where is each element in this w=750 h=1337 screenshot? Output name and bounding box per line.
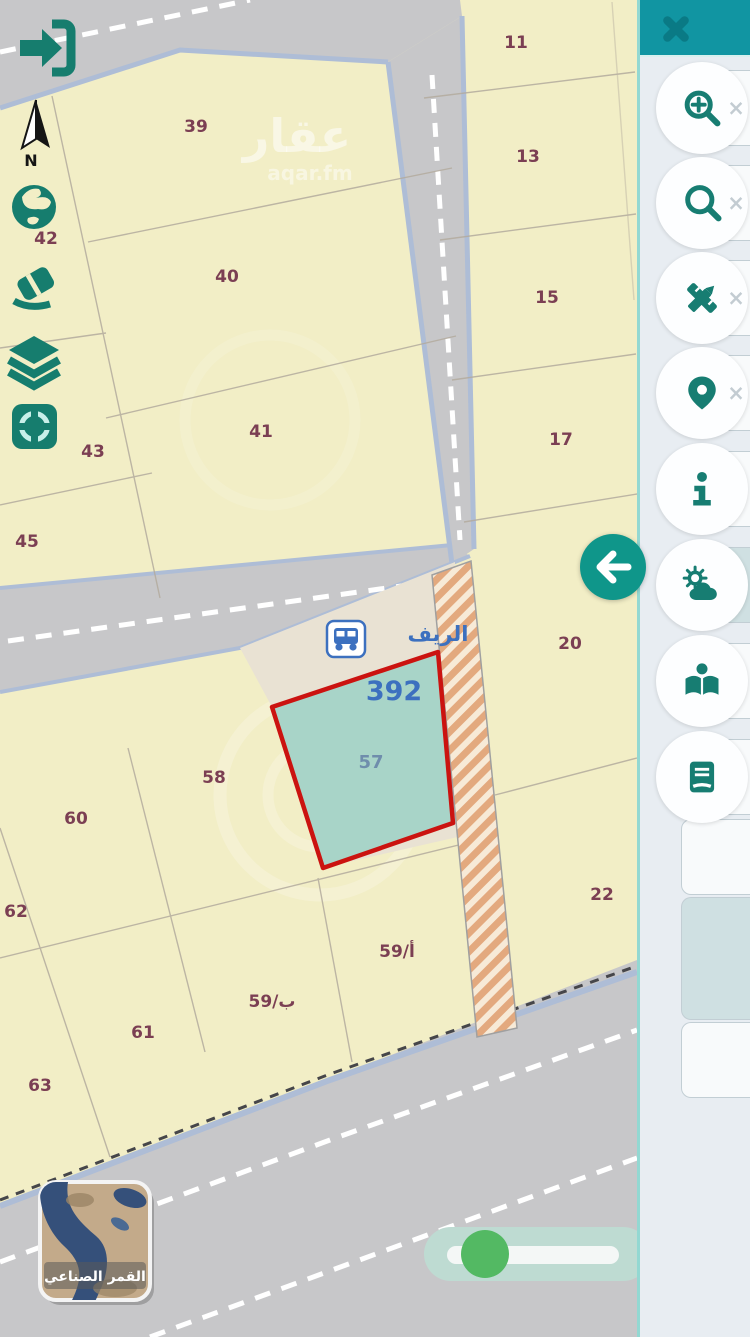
weather-icon — [679, 562, 725, 608]
parcel-label: 42 — [34, 229, 58, 249]
parcel-label: 11 — [504, 33, 528, 53]
bus-stop-icon[interactable] — [327, 621, 365, 657]
parcel-label: 17 — [549, 430, 573, 450]
open-book-icon — [680, 659, 724, 703]
parcel-label: 62 — [4, 902, 28, 922]
sidebar-card-active — [681, 897, 750, 1020]
location-pin-icon — [680, 371, 724, 415]
notebook-icon — [680, 755, 724, 799]
tool-sidebar: × × × × — [637, 0, 750, 1337]
locate-crosshair-icon[interactable] — [12, 404, 57, 449]
sidebar-header — [640, 0, 750, 57]
back-arrow-icon — [590, 544, 636, 590]
app-window: عقار aqar.fm 11 13 15 17 20 22 39 40 41 … — [0, 0, 750, 1337]
dismiss-x[interactable]: × — [726, 286, 746, 310]
parcel-label: 61 — [131, 1023, 155, 1043]
satellite-toggle-label: القمر الصناعي — [44, 1269, 146, 1285]
parcel-label: 13 — [516, 147, 540, 167]
dismiss-x[interactable]: × — [726, 191, 746, 215]
watermark-subtitle: aqar.fm — [267, 161, 352, 185]
globe-icon[interactable] — [12, 185, 56, 229]
collapse-sidebar-button[interactable] — [580, 534, 646, 600]
satellite-layer-toggle[interactable]: القمر الصناعي — [40, 1182, 154, 1305]
dismiss-x[interactable]: × — [726, 381, 746, 405]
zoom-in-icon — [680, 86, 724, 130]
parcel-label: 41 — [249, 422, 273, 442]
drawing-tools-icon — [679, 275, 725, 321]
weather-button[interactable] — [656, 539, 748, 631]
parcel-label: 43 — [81, 442, 105, 462]
parcel-label: 22 — [590, 885, 614, 905]
dismiss-x[interactable]: × — [726, 96, 746, 120]
zoom-slider-knob[interactable] — [461, 1230, 509, 1278]
parcel-label: 63 — [28, 1076, 52, 1096]
parcel-label: 15 — [535, 288, 559, 308]
highlight-parcel-number: 57 — [358, 752, 383, 773]
sidebar-card — [681, 819, 750, 895]
street-name-label: الريف — [407, 622, 468, 646]
zoom-slider[interactable] — [424, 1227, 637, 1281]
block-number-label: 392 — [366, 676, 422, 707]
reader-button[interactable] — [656, 635, 748, 727]
info-icon — [680, 467, 724, 511]
search-icon — [680, 181, 724, 225]
info-button[interactable] — [656, 443, 748, 535]
notebook-button[interactable] — [656, 731, 748, 823]
close-icon[interactable] — [660, 13, 692, 45]
parcel-label: 58 — [202, 768, 226, 788]
parcel-label: 60 — [64, 809, 88, 829]
parcel-label: 59/أ — [379, 940, 415, 962]
parcel-label: 39 — [184, 117, 208, 137]
parcel-label: 40 — [215, 267, 239, 287]
parcel-label: 20 — [558, 634, 582, 654]
sidebar-card — [681, 1022, 750, 1098]
parcel-label: 59/ب — [249, 992, 296, 1012]
watermark-title: عقار — [241, 109, 351, 163]
parcel-label: 45 — [15, 532, 39, 552]
north-label: N — [24, 151, 37, 170]
map-canvas[interactable]: عقار aqar.fm 11 13 15 17 20 22 39 40 41 … — [0, 0, 637, 1337]
